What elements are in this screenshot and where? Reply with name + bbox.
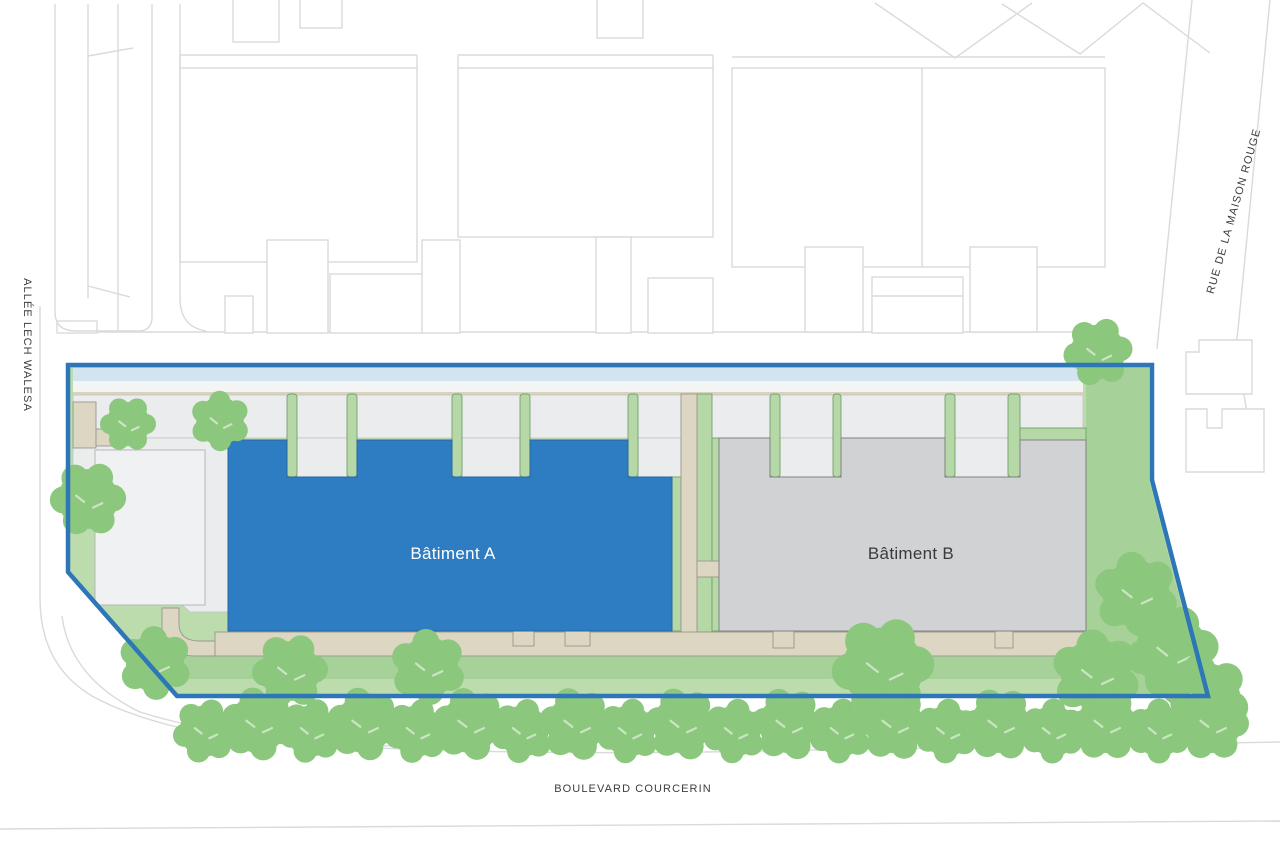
context-roof-ridges — [875, 3, 1210, 58]
context-road-boulevard-edge — [0, 821, 1280, 829]
tree-icon — [540, 688, 613, 759]
footpath-stub — [513, 630, 534, 646]
context-building — [330, 274, 423, 333]
context-road-edges — [118, 4, 206, 331]
planting-strip — [945, 394, 955, 477]
footpath-stub — [995, 630, 1013, 648]
courtyard-finger — [297, 438, 347, 477]
footpath-stub — [565, 630, 590, 646]
planting-strip — [628, 394, 638, 477]
context-building-parapet — [458, 55, 713, 68]
planting-strip-divider — [712, 438, 719, 631]
context-building — [267, 240, 328, 333]
courtyard-finger — [780, 438, 833, 477]
context-building — [805, 247, 863, 332]
context-building — [1186, 340, 1252, 394]
building-a-label: Bâtiment A — [410, 544, 496, 563]
context-building — [648, 278, 713, 333]
site-plan-map: Bâtiment A Bâtiment B ALLÉE LECH WALESA … — [0, 0, 1280, 842]
context-building-divider — [732, 57, 1105, 267]
courtyard-finger — [462, 438, 520, 477]
street-label-allee-lech-walesa: ALLÉE LECH WALESA — [21, 278, 34, 412]
context-building — [300, 0, 342, 28]
building-b-label: Bâtiment B — [868, 544, 954, 563]
context-building-block3 — [732, 68, 1105, 267]
tree-icon — [492, 699, 555, 763]
context-building — [597, 0, 643, 38]
courtyard-finger — [638, 438, 681, 477]
planting-strip — [833, 394, 841, 477]
tree-icon — [751, 689, 825, 759]
context-building-block1 — [180, 68, 417, 262]
context-building-block2 — [458, 68, 713, 237]
street-label-rue-de-la-maison-rouge: RUE DE LA MAISON ROUGE — [1205, 127, 1264, 295]
footpath-south — [215, 632, 1086, 656]
tree-icon — [645, 689, 718, 760]
planting-strip — [452, 394, 462, 477]
context-building — [872, 277, 963, 333]
tree-icon — [328, 688, 400, 760]
context-building — [225, 296, 253, 333]
planting-strip-horizontal — [1020, 428, 1086, 440]
context-building — [970, 247, 1037, 332]
footpath-connector — [697, 561, 719, 577]
tree-icon — [222, 688, 294, 761]
footpath-segment — [73, 402, 96, 448]
planting-strip — [520, 394, 530, 477]
planting-strip — [1008, 394, 1020, 477]
context-building — [596, 237, 631, 333]
context-building — [422, 240, 460, 333]
footpath-divider — [681, 394, 697, 656]
planting-strip-divider — [672, 477, 681, 631]
context-building — [1186, 409, 1264, 472]
planting-strip — [347, 394, 357, 477]
planting-strip — [287, 394, 297, 477]
top-pale-band — [73, 381, 1083, 392]
tree-icon — [434, 688, 507, 760]
footpath-stub — [773, 630, 794, 648]
context-building-parapet — [180, 55, 417, 68]
courtyard-finger — [955, 438, 1008, 477]
planting-strip — [770, 394, 780, 477]
context-building — [233, 0, 279, 42]
context-inner-building — [88, 4, 133, 298]
street-label-boulevard-courcerin: BOULEVARD COURCERIN — [554, 783, 712, 795]
planting-strip-divider — [697, 394, 712, 632]
top-blue-strip — [73, 368, 1083, 381]
